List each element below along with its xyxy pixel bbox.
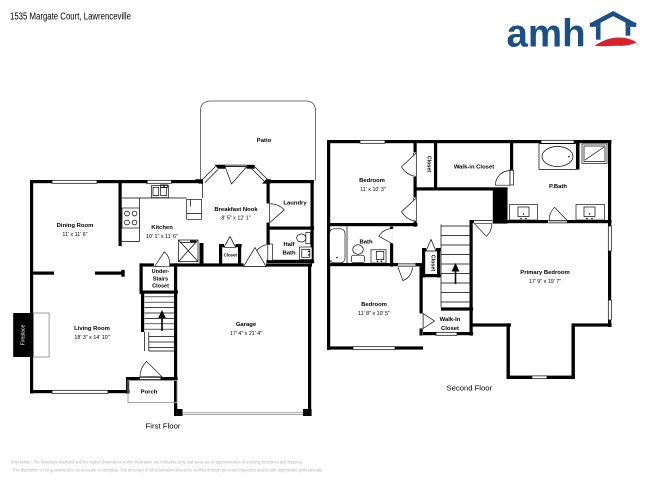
svg-text:Bath: Bath (359, 240, 372, 246)
svg-text:This illustration is not guara: This illustration is not guaranteed to b… (12, 468, 323, 473)
svg-text:Fireplace: Fireplace (21, 325, 27, 346)
svg-text:Living Room: Living Room (74, 326, 110, 332)
svg-text:Primary Bedroom: Primary Bedroom (520, 270, 569, 276)
svg-text:8' 5" x 12' 1": 8' 5" x 12' 1" (221, 216, 250, 222)
svg-text:Garage: Garage (236, 322, 257, 328)
svg-text:amh: amh (507, 13, 586, 56)
svg-text:17' 4" x 21' 4": 17' 4" x 21' 4" (230, 331, 262, 337)
svg-text:Bedroom: Bedroom (359, 178, 385, 184)
svg-text:Laundry: Laundry (283, 201, 307, 207)
svg-text:18' 3" x 14' 10": 18' 3" x 14' 10" (74, 335, 109, 341)
svg-text:Closet: Closet (152, 284, 169, 290)
svg-text:Patio: Patio (257, 138, 272, 144)
svg-text:Closet: Closet (430, 255, 436, 272)
svg-text:Dining Room: Dining Room (57, 223, 94, 229)
svg-text:Half: Half (283, 242, 294, 248)
svg-text:TM: TM (635, 43, 640, 47)
svg-text:Walk-in Closet: Walk-in Closet (454, 165, 494, 171)
svg-text:Disclaimer: The floorplans dep: Disclaimer: The floorplans depicted and … (12, 460, 303, 465)
svg-text:P.Bath: P.Bath (549, 184, 567, 190)
svg-text:Closet: Closet (441, 326, 459, 332)
svg-text:Closet: Closet (224, 253, 238, 258)
svg-text:11' 8" x 10' 5": 11' 8" x 10' 5" (358, 311, 390, 317)
svg-text:10' 1" x 11' 6": 10' 1" x 11' 6" (146, 234, 178, 240)
svg-text:11' x 11' 6": 11' x 11' 6" (62, 232, 87, 238)
svg-text:Closet: Closet (426, 156, 432, 173)
svg-text:First Floor: First Floor (146, 422, 182, 431)
svg-text:Walk-In: Walk-In (440, 317, 461, 323)
svg-text:Bath: Bath (282, 251, 295, 257)
svg-text:Second Floor: Second Floor (447, 384, 493, 393)
svg-text:1535 Margate Court, Lawrencevi: 1535 Margate Court, Lawrenceville (10, 12, 131, 23)
svg-text:Kitchen: Kitchen (151, 225, 173, 231)
svg-text:Stairs: Stairs (153, 276, 168, 282)
svg-text:11' x 10' 3": 11' x 10' 3" (360, 187, 386, 193)
svg-text:Breakfast Nook: Breakfast Nook (214, 207, 258, 213)
svg-text:17' 9" x 19' 7": 17' 9" x 19' 7" (529, 279, 561, 285)
svg-text:Bedroom: Bedroom (361, 302, 387, 308)
svg-text:Porch: Porch (141, 390, 158, 396)
svg-text:Under-: Under- (152, 269, 170, 275)
